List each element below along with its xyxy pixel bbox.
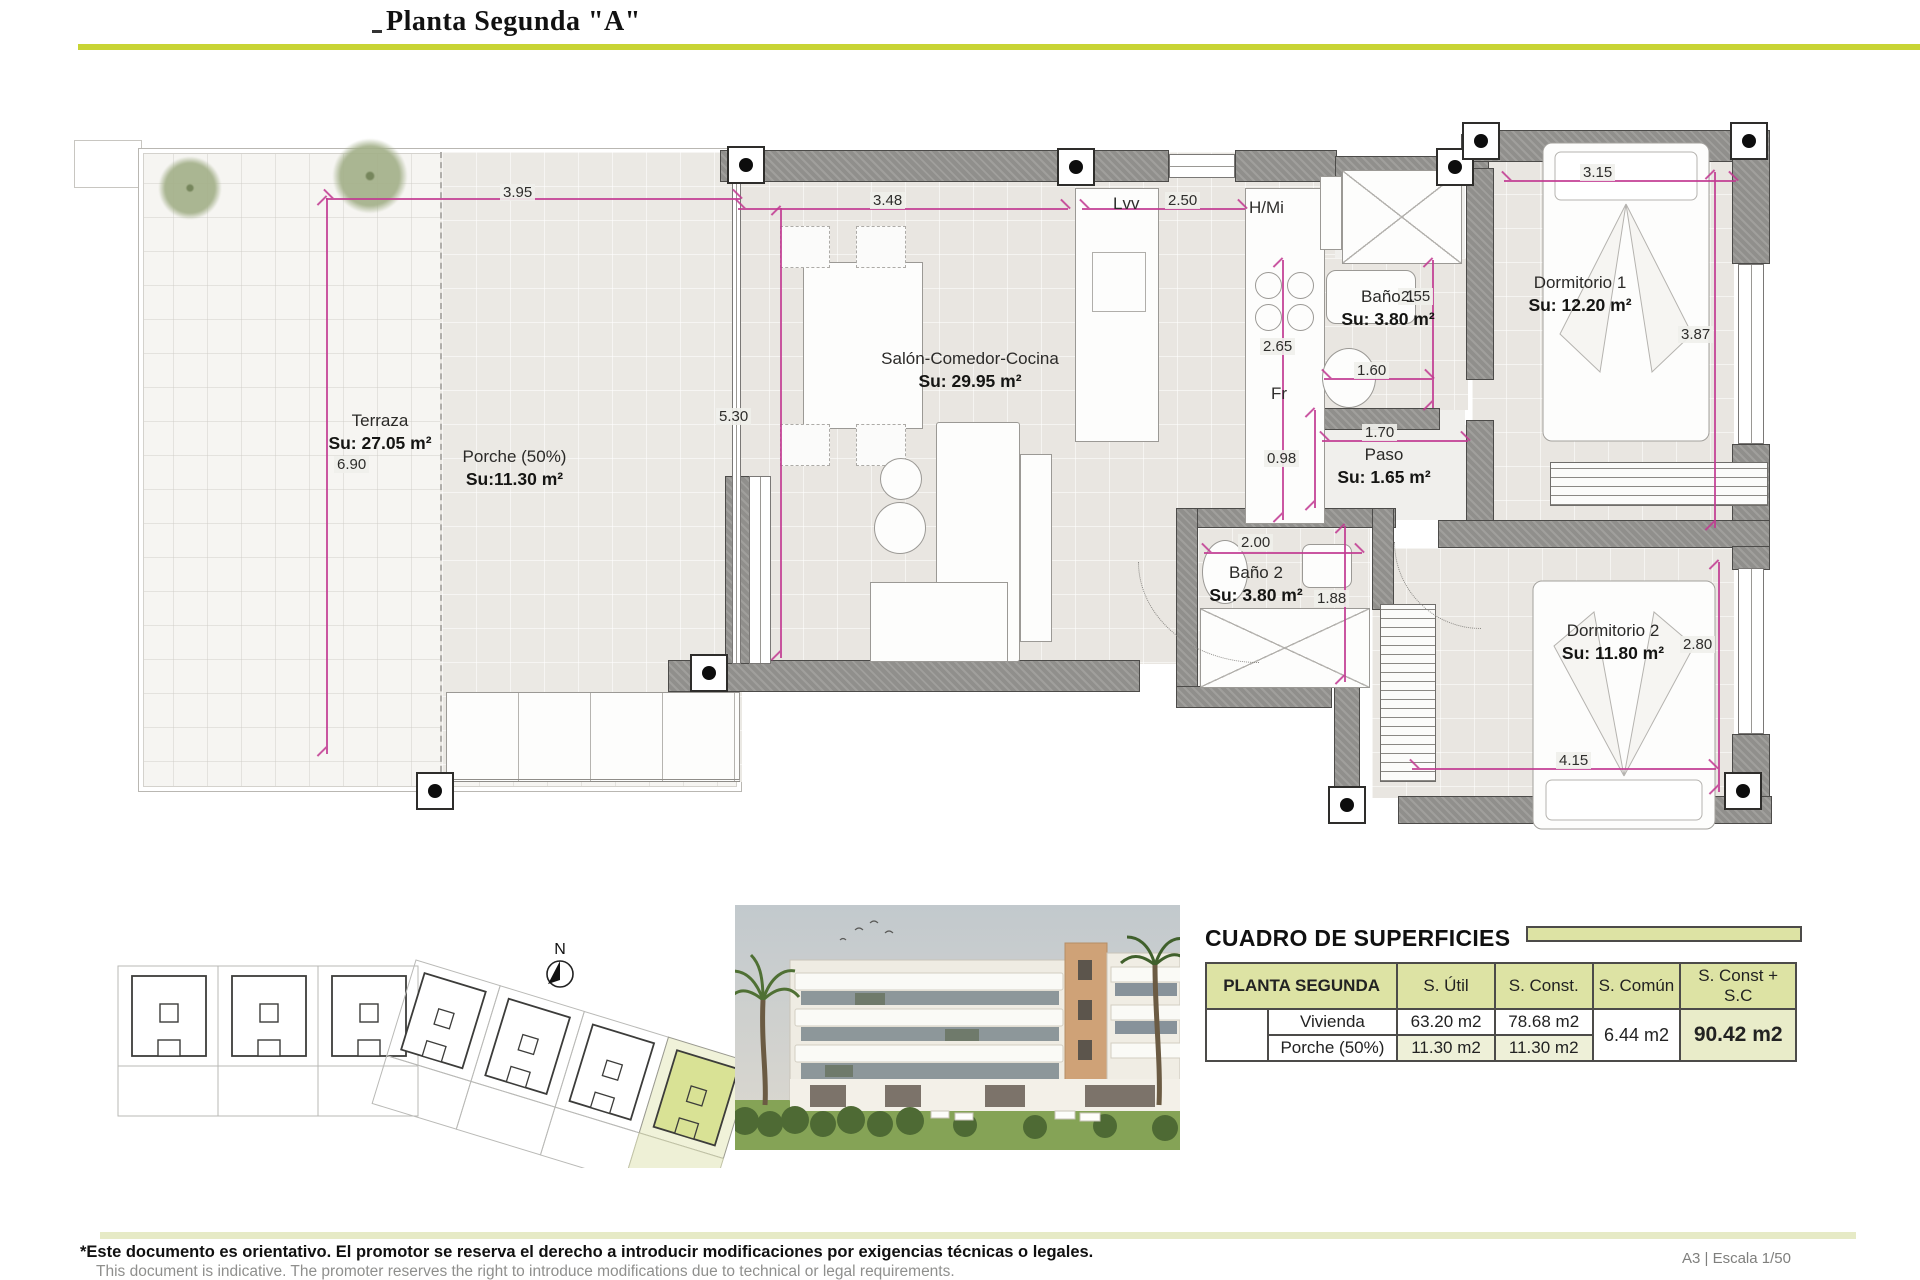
fridge-label: Fr xyxy=(1268,384,1290,404)
hob-burner xyxy=(1255,304,1282,331)
coffee-table xyxy=(870,582,1008,662)
total-value: 90.42 m2 xyxy=(1680,1009,1796,1061)
hob-burner xyxy=(1287,304,1314,331)
dim-line xyxy=(1714,172,1716,528)
sink xyxy=(1092,252,1146,312)
dim-label: 5.30 xyxy=(716,408,751,425)
neighbour-outline xyxy=(74,140,142,188)
title-bar-decoration xyxy=(1526,926,1802,942)
dim-label: 1.60 xyxy=(1354,362,1389,379)
chair xyxy=(780,424,830,466)
hob-burner xyxy=(1287,272,1314,299)
row-util: 11.30 m2 xyxy=(1397,1035,1495,1061)
wall xyxy=(720,150,1169,182)
header-accent-line xyxy=(78,44,1920,50)
window xyxy=(1738,568,1764,734)
row-label: Vivienda xyxy=(1268,1009,1398,1035)
chair xyxy=(780,226,830,268)
wardrobe xyxy=(1380,604,1436,782)
window xyxy=(749,476,771,664)
column-marker xyxy=(416,772,454,810)
plan-sheet: Planta Segunda "A" xyxy=(0,0,1920,1280)
kitchen-island xyxy=(1075,188,1159,442)
disclaimer-en: This document is indicative. The promote… xyxy=(96,1263,955,1280)
dim-label: 3.95 xyxy=(500,184,535,201)
wardrobe xyxy=(1550,462,1768,506)
window xyxy=(1169,154,1235,178)
dim-label: 1.70 xyxy=(1362,424,1397,441)
washer xyxy=(1320,176,1342,250)
wall xyxy=(1466,168,1494,380)
column-marker xyxy=(1328,786,1366,824)
dim-label: 0.98 xyxy=(1264,450,1299,467)
empty-cell xyxy=(1206,1009,1268,1061)
dim-label: 4.15 xyxy=(1556,752,1591,769)
dim-line xyxy=(1314,410,1316,508)
title-tick xyxy=(372,30,382,33)
wall xyxy=(1438,520,1770,548)
window xyxy=(1738,264,1764,444)
row-const: 11.30 m2 xyxy=(1495,1035,1593,1061)
disclaimer-es: *Este documento es orientativo. El promo… xyxy=(80,1243,1093,1262)
column-marker xyxy=(1057,148,1095,186)
surfaces-table: PLANTA SEGUNDA S. Útil S. Const. S. Comú… xyxy=(1205,962,1797,1062)
dim-label: 3.48 xyxy=(870,192,905,209)
surfaces-panel: CUADRO DE SUPERFICIES PLANTA SEGUNDA S. … xyxy=(1205,925,1805,1062)
room-label-dormitorio1: Dormitorio 1 Su: 12.20 m² xyxy=(1495,272,1665,318)
dim-label: 2.65 xyxy=(1260,338,1295,355)
wall xyxy=(668,660,1140,692)
table-row: Vivienda 63.20 m2 78.68 m2 6.44 m2 90.42… xyxy=(1206,1009,1796,1035)
dining-table xyxy=(803,262,923,429)
oven-micro-label: H/Mi xyxy=(1246,198,1287,218)
plant-icon xyxy=(158,156,222,220)
comun-value: 6.44 m2 xyxy=(1593,1009,1681,1061)
dim-line xyxy=(1082,208,1245,210)
surfaces-title: CUADRO DE SUPERFICIES xyxy=(1205,925,1510,951)
floor-plan: 3.95 6.90 3.48 2.50 5.30 2.55 2.65 1.60 … xyxy=(80,110,1800,855)
header-comun: S. Común xyxy=(1593,963,1681,1009)
porche-panels xyxy=(446,692,740,782)
room-label-porche: Porche (50%) Su:11.30 m² xyxy=(432,446,597,492)
bed-dormitorio2 xyxy=(1532,580,1716,830)
footer-accent-bar xyxy=(100,1232,1856,1239)
column-marker xyxy=(727,146,765,184)
row-const: 78.68 m2 xyxy=(1495,1009,1593,1035)
side-table xyxy=(880,458,922,500)
wall xyxy=(1176,686,1332,708)
room-label-dormitorio2: Dormitorio 2 Su: 11.80 m² xyxy=(1528,620,1698,666)
room-label-bano1: Baño 1 Su: 3.80 m² xyxy=(1318,286,1458,332)
header-const: S. Const. xyxy=(1495,963,1593,1009)
page-title: Planta Segunda "A" xyxy=(386,6,641,38)
column-marker xyxy=(1724,772,1762,810)
side-table xyxy=(874,502,926,554)
wall xyxy=(1732,546,1770,570)
building-render-photo xyxy=(735,905,1180,1150)
site-plan: N xyxy=(110,938,770,1168)
dim-line xyxy=(780,208,782,658)
dishwasher-label: Lvv xyxy=(1110,194,1142,214)
column-marker xyxy=(690,654,728,692)
plant-icon xyxy=(332,138,408,214)
header-util: S. Útil xyxy=(1397,963,1495,1009)
dim-line xyxy=(326,198,328,754)
dim-label: 2.50 xyxy=(1165,192,1200,209)
dim-label: 2.00 xyxy=(1238,534,1273,551)
room-label-paso: Paso Su: 1.65 m² xyxy=(1324,444,1444,490)
column-marker xyxy=(1462,122,1500,160)
chair xyxy=(856,226,906,268)
sheet-scale-info: A3 | Escala 1/50 xyxy=(1682,1250,1791,1267)
dim-label: 3.87 xyxy=(1678,326,1713,343)
column-marker xyxy=(1730,122,1768,160)
kitchen-counter xyxy=(1245,188,1325,524)
header-planta: PLANTA SEGUNDA xyxy=(1206,963,1397,1009)
dim-line xyxy=(1432,260,1434,408)
dim-line xyxy=(1504,180,1736,182)
dim-label: 6.90 xyxy=(334,456,369,473)
dim-label: 3.15 xyxy=(1580,164,1615,181)
hob-burner xyxy=(1255,272,1282,299)
wall xyxy=(1466,420,1494,524)
wall xyxy=(1334,684,1360,798)
sofa-chaise xyxy=(1020,454,1052,642)
row-label: Porche (50%) xyxy=(1268,1035,1398,1061)
north-letter: N xyxy=(554,941,566,958)
row-util: 63.20 m2 xyxy=(1397,1009,1495,1035)
room-label-bano2: Baño 2 Su: 3.80 m² xyxy=(1186,562,1326,608)
header-total: S. Const + S.C xyxy=(1680,963,1796,1009)
dim-line xyxy=(1718,562,1720,792)
room-label-salon: Salón-Comedor-Cocina Su: 29.95 m² xyxy=(870,348,1070,394)
table-header-row: PLANTA SEGUNDA S. Útil S. Const. S. Comú… xyxy=(1206,963,1796,1009)
wall xyxy=(1372,508,1394,610)
dim-line xyxy=(1204,552,1362,554)
